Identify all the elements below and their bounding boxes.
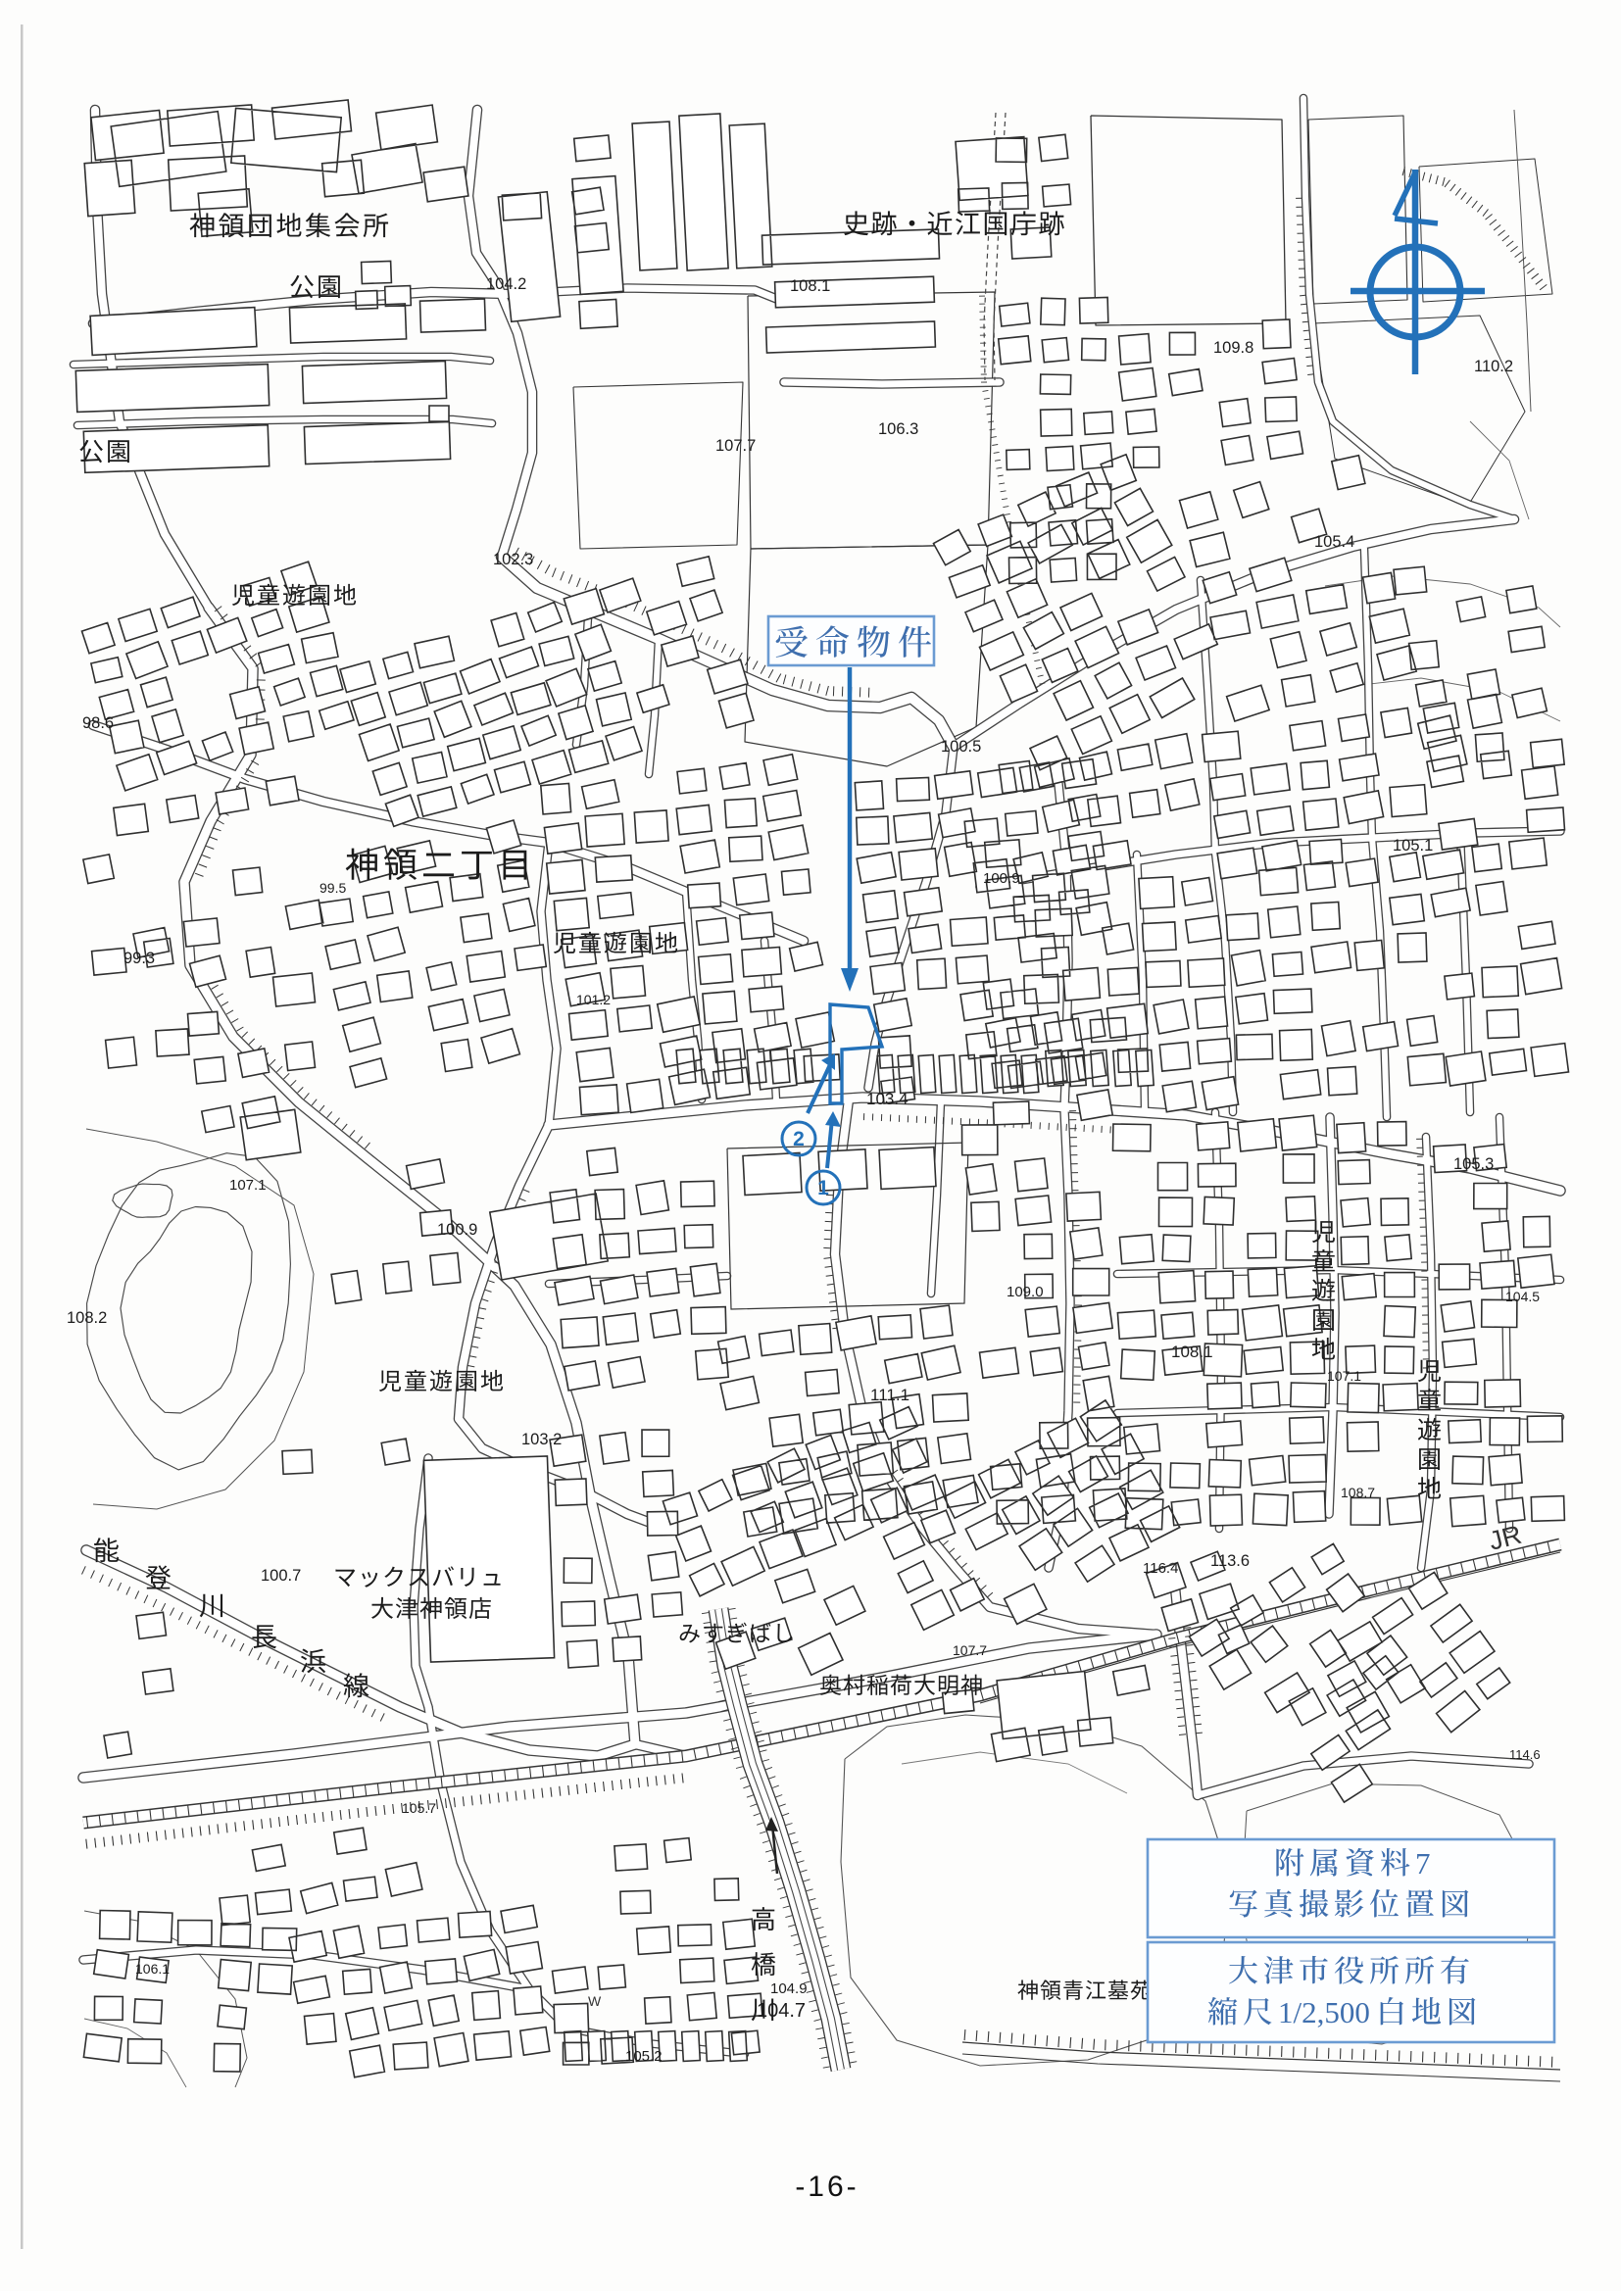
svg-text:2: 2 bbox=[793, 1128, 805, 1150]
svg-text:106.1: 106.1 bbox=[135, 1961, 170, 1977]
svg-text:116.4: 116.4 bbox=[1143, 1560, 1178, 1577]
svg-text:108.2: 108.2 bbox=[67, 1309, 107, 1327]
svg-text:100.7: 100.7 bbox=[261, 1567, 301, 1585]
svg-text:1/2,500: 1/2,500 bbox=[1278, 1995, 1370, 2029]
svg-text:107.7: 107.7 bbox=[715, 437, 756, 455]
svg-text:105.1: 105.1 bbox=[1393, 837, 1433, 855]
svg-text:99.5: 99.5 bbox=[319, 880, 346, 896]
svg-text:108.1: 108.1 bbox=[1171, 1343, 1213, 1361]
svg-text:104.2: 104.2 bbox=[486, 275, 526, 293]
svg-text:1: 1 bbox=[817, 1177, 829, 1199]
svg-text:100.9: 100.9 bbox=[983, 870, 1020, 887]
svg-text:114.6: 114.6 bbox=[1509, 1747, 1541, 1762]
svg-text:106.3: 106.3 bbox=[878, 420, 918, 438]
svg-text:102.3: 102.3 bbox=[493, 551, 533, 568]
svg-text:107.1: 107.1 bbox=[1327, 1368, 1361, 1384]
svg-text:99.3: 99.3 bbox=[123, 950, 155, 967]
svg-text:104.5: 104.5 bbox=[1505, 1289, 1540, 1304]
svg-text:107.7: 107.7 bbox=[953, 1642, 987, 1658]
svg-text:108.1: 108.1 bbox=[790, 277, 830, 295]
svg-text:101.2: 101.2 bbox=[576, 992, 611, 1007]
svg-text:105.2: 105.2 bbox=[625, 2048, 663, 2065]
svg-text:98.6: 98.6 bbox=[82, 714, 114, 732]
svg-text:105.4: 105.4 bbox=[1314, 533, 1354, 551]
svg-text:103.2: 103.2 bbox=[521, 1431, 562, 1448]
svg-text:7: 7 bbox=[1415, 1846, 1431, 1881]
svg-text:105.3: 105.3 bbox=[1453, 1155, 1494, 1173]
svg-text:-16-: -16- bbox=[795, 2171, 859, 2203]
svg-text:109.8: 109.8 bbox=[1213, 339, 1253, 357]
svg-text:109.0: 109.0 bbox=[1007, 1284, 1044, 1300]
svg-text:111.1: 111.1 bbox=[870, 1386, 909, 1404]
svg-text:100.9: 100.9 bbox=[437, 1221, 477, 1239]
svg-text:105.7: 105.7 bbox=[402, 1800, 436, 1816]
svg-text:110.2: 110.2 bbox=[1474, 358, 1513, 375]
svg-text:104.9: 104.9 bbox=[770, 1980, 808, 1997]
svg-text:100.5: 100.5 bbox=[941, 738, 981, 756]
svg-text:W: W bbox=[588, 1993, 602, 2009]
svg-text:107.1: 107.1 bbox=[229, 1177, 267, 1194]
svg-text:103.4: 103.4 bbox=[866, 1090, 909, 1108]
svg-text:108.7: 108.7 bbox=[1341, 1485, 1375, 1500]
svg-text:113.6: 113.6 bbox=[1210, 1552, 1250, 1570]
